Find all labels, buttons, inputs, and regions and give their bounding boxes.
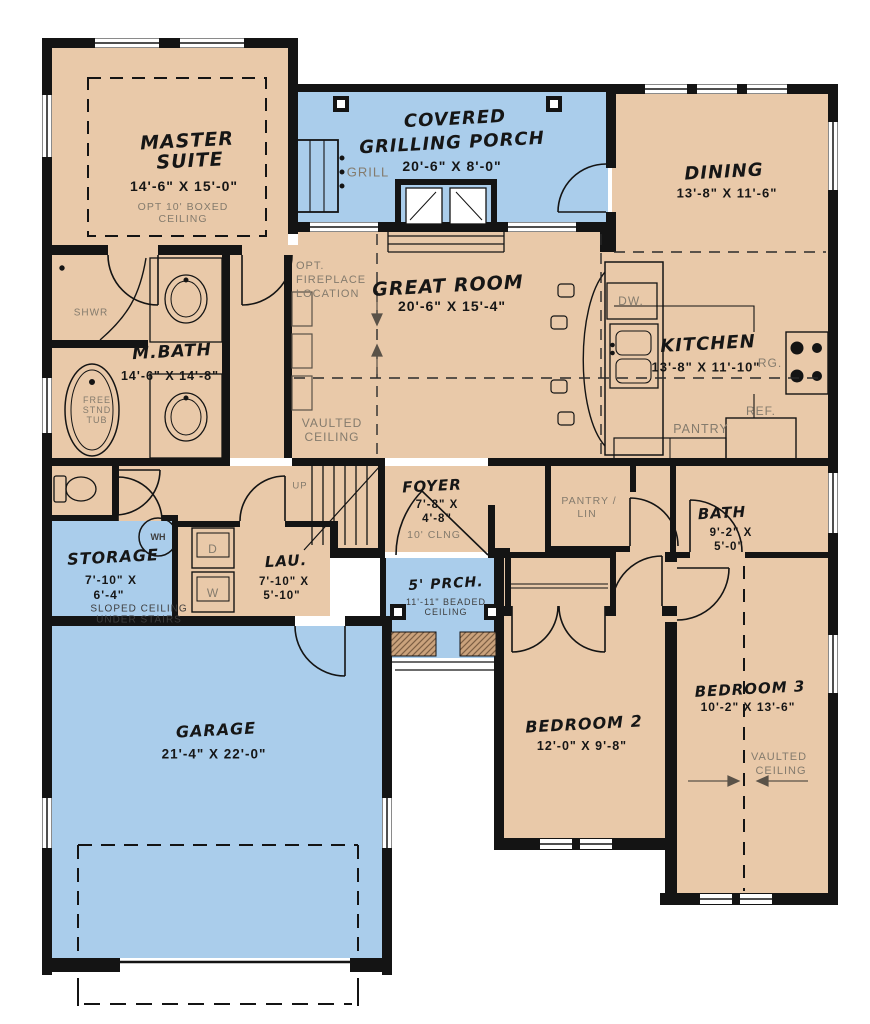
front-porch-note-2: CEILING (424, 607, 467, 617)
master-suite-label-2: SUITE (156, 148, 224, 173)
foyer-dims-1: 7'-8" X (416, 499, 459, 511)
tub-label-2: STND (83, 405, 112, 415)
great-room-dims: 20'-6" X 15'-4" (398, 298, 506, 314)
fireplace-note-1: OPT. (296, 260, 324, 272)
grill (296, 140, 338, 212)
front-porch-note-1: 11'-11" BEADED (406, 597, 486, 607)
grilling-porch-dims: 20'-6" X 8'-0" (402, 158, 501, 174)
laundry-label: LAU. (264, 551, 307, 571)
bar-stool (558, 284, 574, 297)
bedroom2-door (612, 556, 662, 606)
refrigerator-label: REF. (746, 404, 776, 418)
bedroom3-dims: 10'-2" X 13'-6" (701, 700, 796, 714)
front-steps (391, 662, 500, 670)
bath-dims-1: 9'-2" X (710, 527, 753, 539)
closet-door-right (559, 606, 605, 652)
dining-label: DINING (684, 159, 764, 184)
tub-label-1: FREE (83, 395, 111, 405)
grill-label: GRILL (347, 165, 390, 180)
great-room-ceiling-note-1: VAULTED (302, 416, 363, 430)
water-heater-label: WH (151, 532, 166, 542)
eating-bar (583, 272, 605, 446)
washer-label: W (207, 586, 219, 600)
bar-stool (551, 380, 567, 393)
porch-dining-door (558, 164, 606, 212)
garage-door (295, 626, 345, 676)
dryer-label: D (208, 542, 218, 556)
master-bath-label: M.BATH (132, 340, 213, 364)
storage-note-2: UNDER STAIRS (96, 615, 182, 626)
fireplace-media-boxes (292, 292, 312, 410)
master-suite-dims: 14'-6" X 15'-0" (130, 178, 238, 194)
bath-dims-2: 5'-0" (714, 541, 744, 553)
wc-toilet-tank (54, 476, 66, 502)
fireplace-note-3: LOCATION (296, 288, 359, 300)
garage-door-header-dashed (78, 845, 358, 953)
dining-dims: 13'-8" X 11'-6" (677, 186, 778, 201)
dishwasher-label: DW. (618, 294, 644, 308)
master-bath-dims: 14'-6" X 14'-8" (121, 369, 219, 383)
driveway-marks (78, 978, 358, 1006)
floor-plan: MASTER SUITE 14'-6" X 15'-0" OPT 10' BOX… (0, 0, 870, 1024)
bedroom3-ceiling-note-1: VAULTED (751, 751, 807, 763)
range-label: RG. (758, 356, 782, 370)
vanity-top (150, 258, 222, 342)
shower-head (60, 266, 64, 270)
pantry-label: PANTRY (673, 422, 729, 436)
laundry-door (240, 476, 285, 521)
stairs-up-label: UP (292, 481, 307, 492)
bedroom3-ceiling-note-2: CEILING (755, 765, 806, 777)
bath-label: BATH (697, 503, 746, 524)
closet-door-left (512, 606, 558, 652)
kitchen-dims: 13'-8" X 11'-10" (652, 360, 761, 375)
bedroom2-dims: 12'-0" X 9'-8" (537, 739, 627, 753)
refrigerator (726, 418, 796, 464)
foyer-dims-2: 4'-8" (422, 513, 452, 525)
pantry-linen-label-1: PANTRY / (561, 495, 616, 507)
stairs (304, 466, 380, 550)
storage-note-1: SLOPED CEILING (90, 604, 187, 615)
laundry-dims-2: 5'-10" (263, 590, 300, 602)
bar-stool (558, 412, 574, 425)
shower-glass (100, 258, 146, 340)
vanity-bottom (150, 374, 222, 458)
foyer-label: FOYER (402, 475, 462, 496)
range (786, 332, 828, 394)
pantry-linen-label-2: LIN (577, 508, 596, 520)
bar-stool (551, 316, 567, 329)
wc-toilet-bowl (66, 477, 96, 501)
great-room-ceiling-note-2: CEILING (304, 430, 359, 444)
garage-dims: 21'-4" X 22'-0" (162, 747, 267, 762)
closet-shelf (510, 584, 608, 588)
master-ceiling-note-1: OPT 10' BOXED (138, 201, 229, 213)
storage-dims-1: 7'-10" X (85, 573, 137, 587)
tub-label-3: TUB (87, 415, 108, 425)
laundry-dims-1: 7'-10" X (259, 576, 309, 588)
foyer-ceiling-note: 10' CLNG (407, 529, 461, 541)
shower-label: SHWR (74, 308, 109, 319)
storage-dims-2: 6'-4" (94, 588, 125, 602)
master-ceiling-note-2: CEILING (158, 213, 207, 225)
bedroom3-door (677, 568, 729, 620)
fireplace-note-2: FIREPLACE (296, 274, 366, 286)
